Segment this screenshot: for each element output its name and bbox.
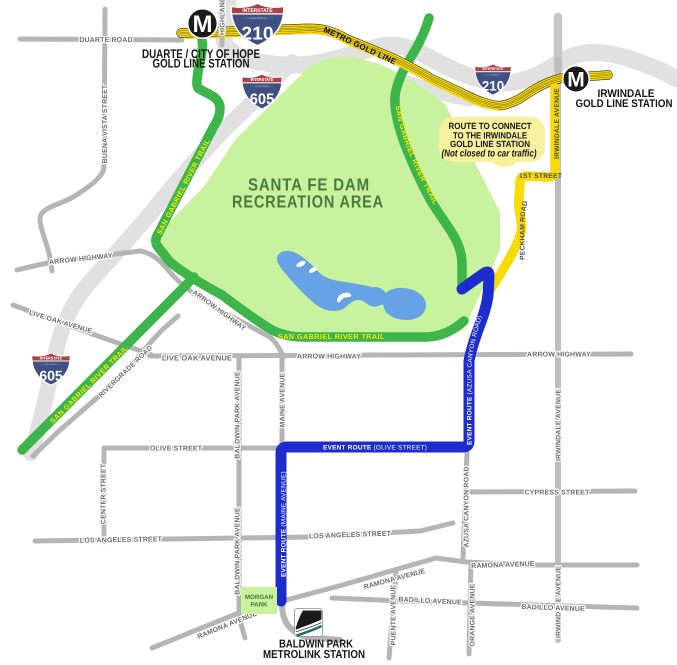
svg-text:PUENTE AVENUE: PUENTE AVENUE [391, 584, 398, 645]
svg-text:CENTER STREET: CENTER STREET [101, 463, 108, 524]
svg-text:OLIVE STREET: OLIVE STREET [150, 446, 203, 453]
svg-text:IRWINDALE AVENUE: IRWINDALE AVENUE [556, 566, 563, 638]
svg-text:LOS ANGELES STREET: LOS ANGELES STREET [80, 536, 163, 544]
svg-text:INTERSTATE: INTERSTATE [483, 66, 504, 71]
svg-text:INTERSTATE: INTERSTATE [250, 77, 273, 82]
svg-text:(Not closed to car traffic): (Not closed to car traffic) [442, 149, 538, 160]
svg-text:210: 210 [241, 23, 273, 44]
svg-text:ARROW HIGHWAY: ARROW HIGHWAY [527, 352, 591, 359]
svg-text:LIVE OAK AVENUE: LIVE OAK AVENUE [162, 354, 232, 363]
svg-text:PARK: PARK [250, 602, 268, 609]
svg-text:CALIFORNIA: CALIFORNIA [487, 74, 499, 77]
svg-text:BUENA VISTA STREET: BUENA VISTA STREET [102, 84, 109, 163]
svg-text:1ST STREET: 1ST STREET [519, 173, 563, 180]
svg-text:M: M [567, 69, 585, 92]
svg-text:EVENT ROUTE (OLIVE STREET): EVENT ROUTE (OLIVE STREET) [323, 445, 427, 452]
svg-text:DUARTE ROAD: DUARTE ROAD [79, 37, 132, 44]
svg-text:CALIFORNIA: CALIFORNIA [45, 363, 58, 366]
svg-text:EVENT ROUTE (MAINE AVENUE): EVENT ROUTE (MAINE AVENUE) [281, 471, 288, 577]
svg-text:METROLINK STATION: METROLINK STATION [263, 649, 365, 661]
svg-text:INTERSTATE: INTERSTATE [40, 355, 62, 360]
svg-text:SAN GABRIEL RIVER TRAIL: SAN GABRIEL RIVER TRAIL [278, 332, 385, 341]
svg-text:GOLD LINE STATION: GOLD LINE STATION [450, 139, 530, 149]
svg-text:605: 605 [39, 368, 63, 384]
svg-text:AZUSA CANYON ROAD: AZUSA CANYON ROAD [464, 466, 471, 547]
svg-text:ARROW HIGHWAY: ARROW HIGHWAY [297, 354, 361, 361]
svg-text:ROUTE TO CONNECT: ROUTE TO CONNECT [449, 121, 532, 131]
svg-text:MORGAN: MORGAN [245, 594, 274, 601]
svg-text:CALIFORNIA: CALIFORNIA [249, 16, 266, 20]
svg-text:IRWINDALE AVENUE: IRWINDALE AVENUE [554, 88, 561, 159]
svg-text:ORANGE AVENUE: ORANGE AVENUE [470, 583, 477, 646]
svg-text:GOLD LINE STATION: GOLD LINE STATION [153, 57, 250, 71]
svg-text:BALDWIN PARK AVENUE: BALDWIN PARK AVENUE [235, 507, 242, 595]
svg-text:210: 210 [482, 78, 504, 94]
svg-text:RECREATION AREA: RECREATION AREA [232, 192, 384, 212]
svg-text:GOLD LINE STATION: GOLD LINE STATION [576, 98, 673, 110]
svg-text:M: M [193, 11, 213, 38]
svg-text:IRWINDALE AVENUE: IRWINDALE AVENUE [556, 389, 563, 461]
svg-text:BALDWIN PARK AVENUE: BALDWIN PARK AVENUE [235, 371, 242, 459]
svg-text:CALIFORNIA: CALIFORNIA [256, 85, 269, 88]
svg-text:CYPRESS STREET: CYPRESS STREET [524, 490, 590, 497]
svg-text:605: 605 [250, 90, 275, 107]
svg-text:HIGHLAND: HIGHLAND [220, 0, 227, 35]
svg-text:MAINE AVENUE: MAINE AVENUE [280, 372, 287, 427]
svg-text:INTERSTATE: INTERSTATE [242, 6, 273, 13]
